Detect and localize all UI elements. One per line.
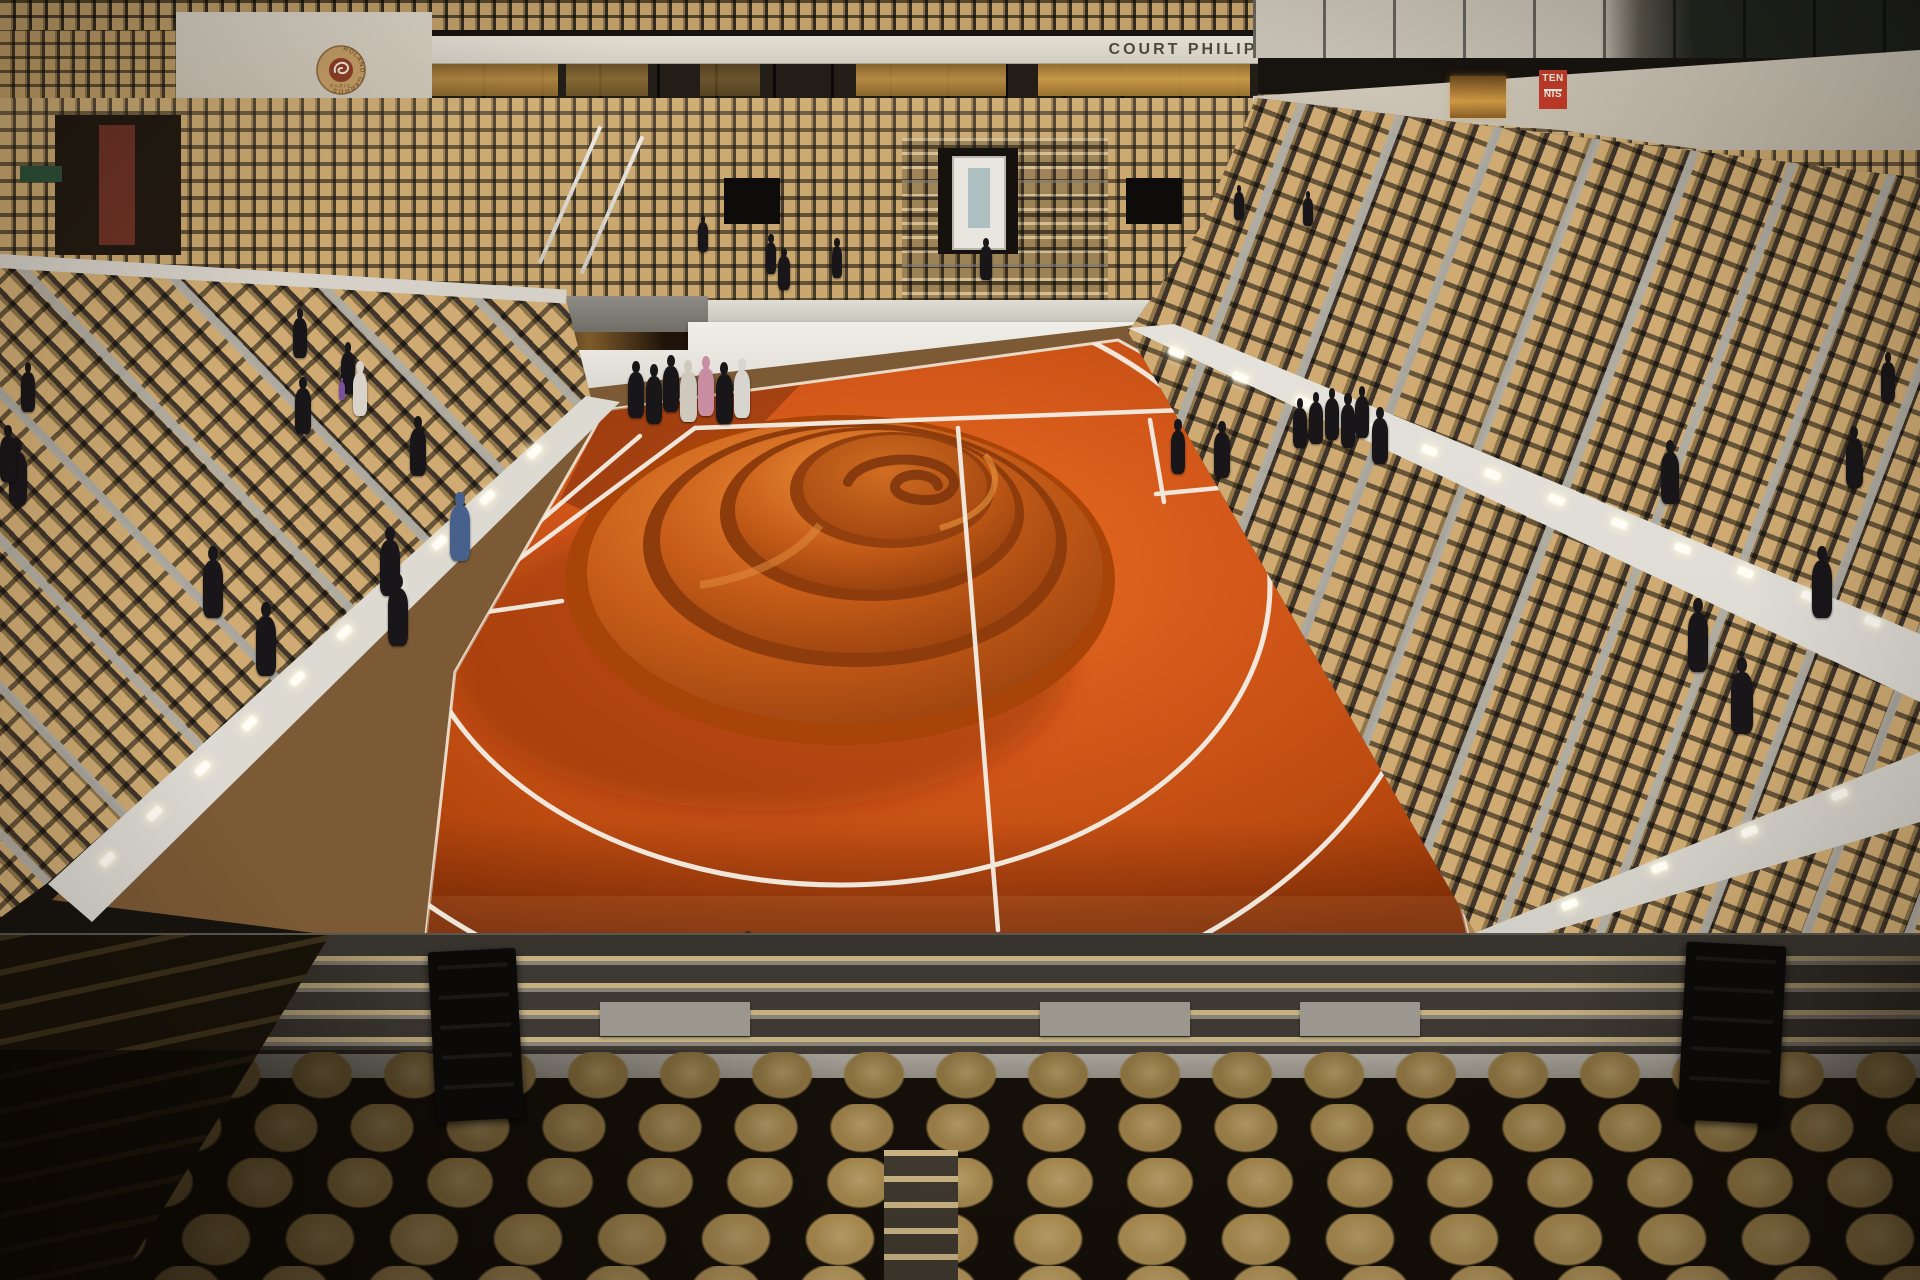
foreground-seat-rows (0, 0, 1920, 1280)
seat-row (0, 1266, 1920, 1280)
stadium-photo: COURT PHILIPPE - CHATRIER TEN NIS ROLAND… (0, 0, 1920, 1280)
foreground-aisle-stairs (884, 1150, 958, 1280)
seat-row (0, 1052, 1920, 1108)
speaker-stack-left (428, 948, 525, 1122)
seat-row (0, 1104, 1920, 1162)
speaker-stack-right (1677, 942, 1786, 1125)
seat-row (0, 1158, 1920, 1218)
